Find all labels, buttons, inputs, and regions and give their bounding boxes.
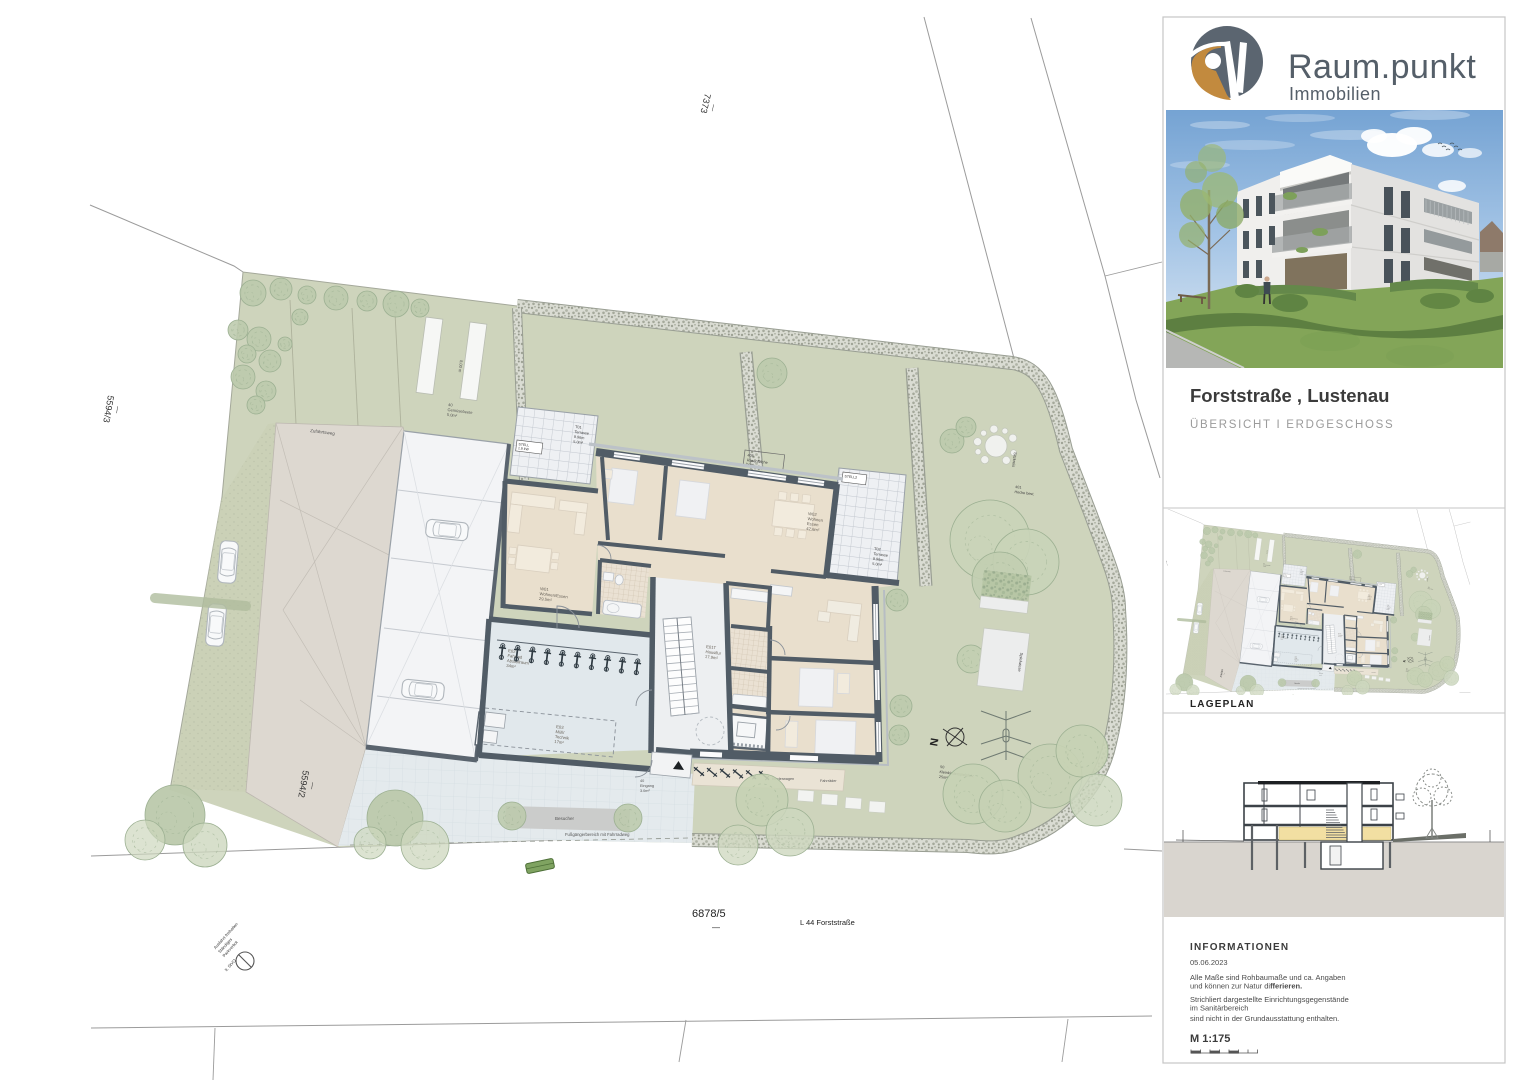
svg-text:INFORMATIONEN: INFORMATIONEN — [1190, 942, 1289, 953]
svg-text:Raum.punkt: Raum.punkt — [1288, 48, 1476, 86]
svg-text:—: — — [712, 923, 720, 932]
svg-text:40: 40 — [640, 779, 644, 783]
svg-text:ÜBERSICHT I ERDGESCHOSS: ÜBERSICHT I ERDGESCHOSS — [1190, 419, 1394, 431]
svg-text:Immobilien: Immobilien — [1289, 84, 1381, 104]
svg-text:T01: T01 — [575, 425, 582, 430]
svg-text:—: — — [308, 782, 316, 790]
svg-text:Fußgängerbereich mit Fahrradwe: Fußgängerbereich mit Fahrradweg — [565, 832, 630, 837]
svg-text:6878/5: 6878/5 — [692, 908, 726, 920]
svg-text:Besucher: Besucher — [555, 816, 575, 821]
svg-text:LAGEPLAN: LAGEPLAN — [1190, 699, 1255, 710]
svg-text:401: 401 — [1015, 485, 1022, 490]
svg-text:3.0m²: 3.0m² — [640, 789, 650, 793]
svg-text:im Sanitärbereich: im Sanitärbereich — [1190, 1004, 1248, 1013]
svg-text:Fahrräder: Fahrräder — [820, 779, 837, 783]
svg-text:und können zur Natur differier: und können zur Natur differieren. — [1190, 982, 1302, 991]
svg-text:Eingang: Eingang — [640, 784, 654, 788]
svg-text:Forststraße , Lustenau: Forststraße , Lustenau — [1190, 385, 1389, 406]
svg-text:405: 405 — [747, 453, 754, 458]
svg-text:T02: T02 — [874, 547, 881, 552]
svg-text:M 1:175: M 1:175 — [1190, 1033, 1230, 1045]
svg-text:L 44 Forststraße: L 44 Forststraße — [800, 918, 855, 927]
svg-text:50: 50 — [940, 765, 945, 769]
svg-text:—: — — [113, 406, 121, 414]
svg-text:sind nicht in der Grundausstat: sind nicht in der Grundausstattung entha… — [1190, 1014, 1339, 1023]
svg-text:05.06.2023: 05.06.2023 — [1190, 958, 1228, 967]
